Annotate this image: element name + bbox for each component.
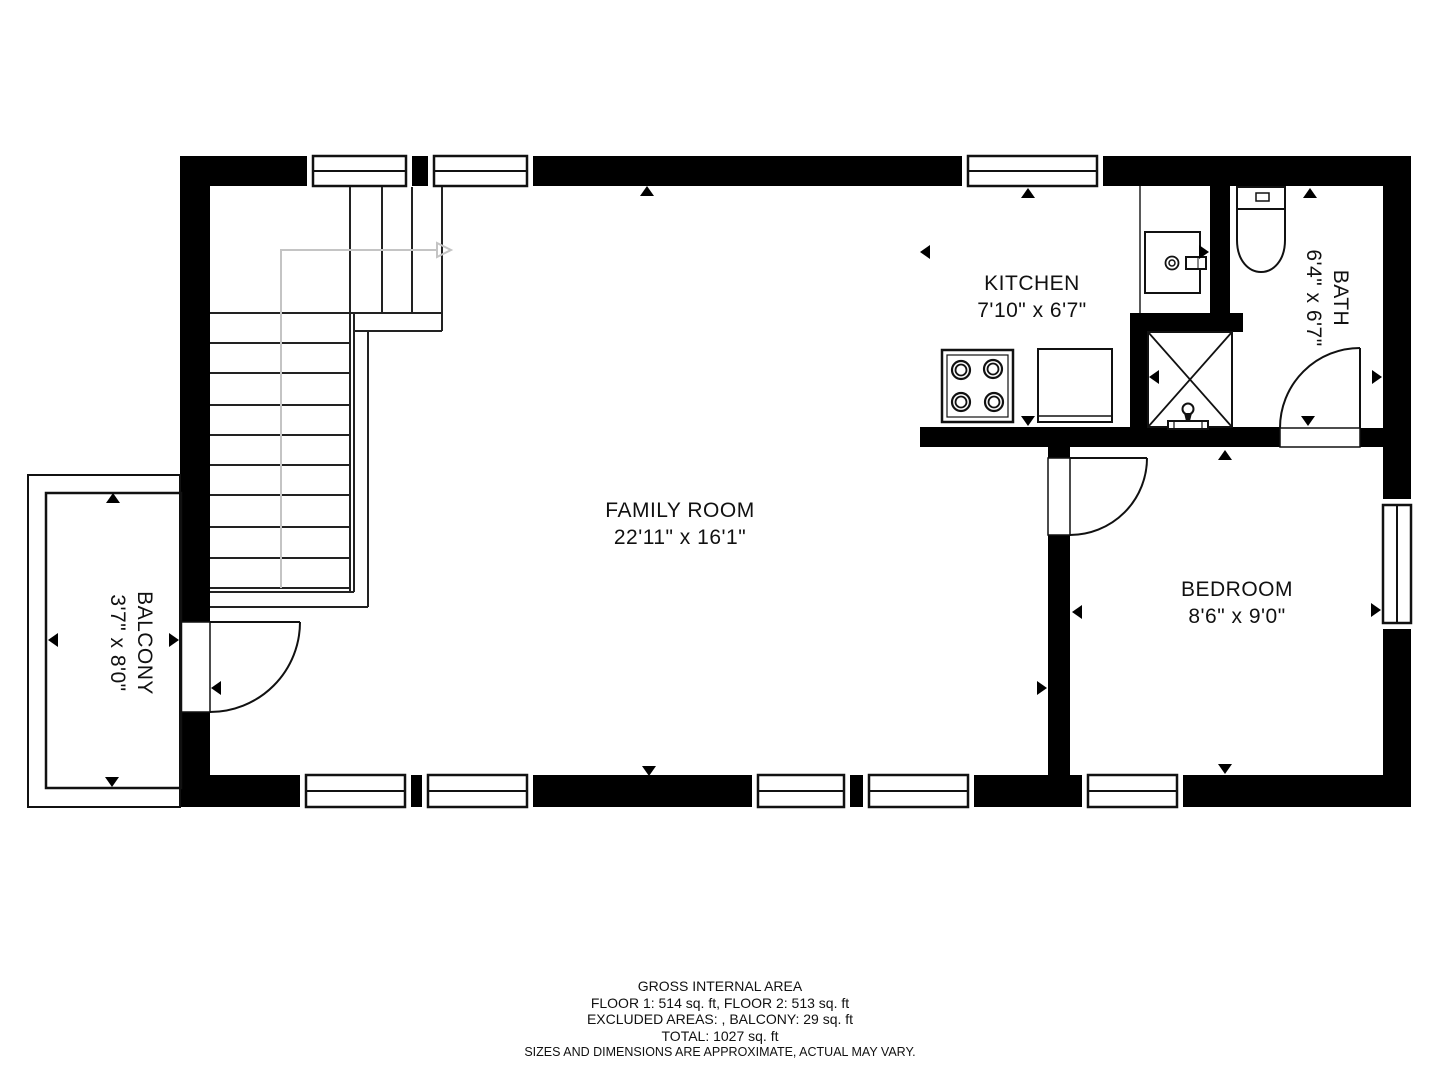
balcony-label: BALCONY 3'7" x 8'0" [104, 591, 158, 695]
arrow-left-icon [211, 681, 221, 695]
bath-door-swing [1280, 348, 1360, 428]
arrow-right-icon [1037, 681, 1047, 695]
room-dimensions: 3'7" x 8'0" [104, 591, 131, 695]
window [752, 775, 850, 807]
family-room-dimension-arrows [211, 186, 1047, 776]
room-name: FAMILY ROOM [605, 497, 754, 524]
arrow-left-icon [48, 633, 58, 647]
room-name: BATH [1327, 249, 1354, 346]
bath-door-opening [1280, 428, 1360, 447]
arrow-up-icon [640, 186, 654, 196]
window [1383, 499, 1411, 629]
room-name: BEDROOM [1181, 576, 1293, 603]
arrow-down-icon [1218, 764, 1232, 774]
arrow-up-icon [106, 493, 120, 503]
room-dimensions: 8'6" x 9'0" [1181, 603, 1293, 630]
kitchen-counter-icon [1038, 349, 1112, 422]
bedroom-door-swing [1070, 458, 1147, 535]
room-dimensions: 6'4" x 6'7" [1300, 249, 1327, 346]
arrow-up-icon [1218, 450, 1232, 460]
door-openings [180, 428, 1360, 712]
arrow-down-icon [1301, 416, 1315, 426]
window [307, 156, 412, 186]
room-dimensions: 7'10" x 6'7" [977, 297, 1087, 324]
arrow-down-icon [642, 766, 656, 776]
bath-label: BATH 6'4" x 6'7" [1300, 249, 1354, 346]
room-name: KITCHEN [977, 270, 1087, 297]
window [962, 156, 1103, 186]
stair-direction-arrow [281, 243, 451, 588]
floor-areas: FLOOR 1: 514 sq. ft, FLOOR 2: 513 sq. ft [524, 995, 915, 1012]
window [428, 156, 533, 186]
floor-plan-page: FAMILY ROOM 22'11" x 16'1" KITCHEN 7'10"… [0, 0, 1440, 1080]
gross-internal-area-title: GROSS INTERNAL AREA [524, 978, 915, 995]
area-summary: GROSS INTERNAL AREA FLOOR 1: 514 sq. ft,… [524, 978, 915, 1061]
bedroom-door-opening [1048, 458, 1070, 535]
arrow-down-icon [105, 777, 119, 787]
arrow-right-icon [169, 633, 179, 647]
toilet-icon [1237, 187, 1285, 272]
total-area: TOTAL: 1027 sq. ft [524, 1028, 915, 1045]
window [422, 775, 533, 807]
arrow-right-icon [1372, 370, 1382, 384]
arrow-left-icon [920, 245, 930, 259]
arrow-up-icon [1303, 188, 1317, 198]
arrow-left-icon [1072, 605, 1082, 619]
arrow-up-icon [1021, 188, 1035, 198]
room-name: BALCONY [131, 591, 158, 695]
balcony-door-swing [210, 622, 300, 712]
stove-icon [942, 350, 1013, 422]
balcony-door-opening [180, 622, 210, 712]
arrow-down-icon [1021, 416, 1035, 426]
window [1082, 775, 1183, 807]
bedroom-label: BEDROOM 8'6" x 9'0" [1181, 576, 1293, 630]
shower-icon [1148, 332, 1232, 429]
window [863, 775, 974, 807]
family-room-label: FAMILY ROOM 22'11" x 16'1" [605, 497, 754, 551]
room-dimensions: 22'11" x 16'1" [605, 524, 754, 551]
window [300, 775, 411, 807]
sink-icon [1145, 232, 1206, 293]
kitchen-label: KITCHEN 7'10" x 6'7" [977, 270, 1087, 324]
arrow-right-icon [1371, 603, 1381, 617]
excluded-areas: EXCLUDED AREAS: , BALCONY: 29 sq. ft [524, 1011, 915, 1028]
disclaimer: SIZES AND DIMENSIONS ARE APPROXIMATE, AC… [524, 1044, 915, 1061]
